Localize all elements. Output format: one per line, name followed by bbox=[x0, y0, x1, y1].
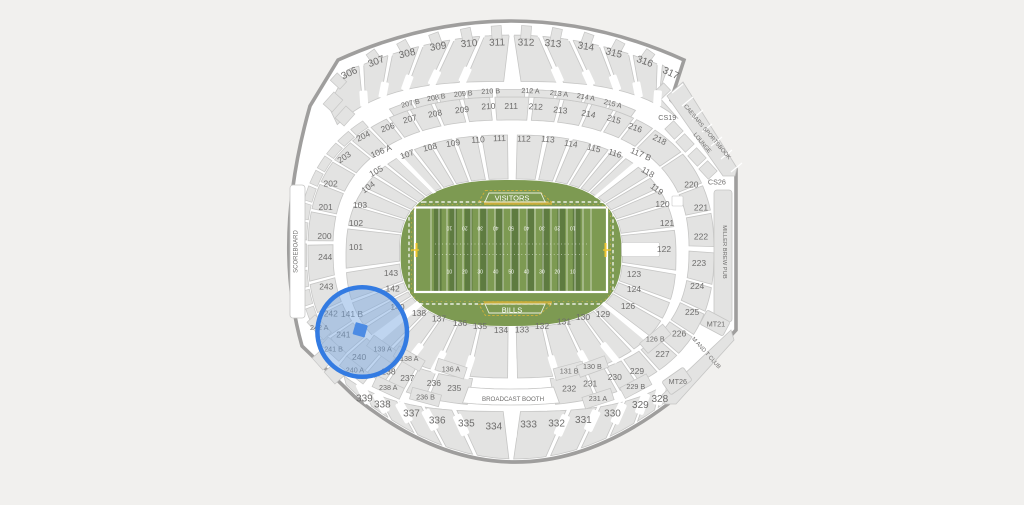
svg-text:212: 212 bbox=[528, 101, 543, 112]
svg-text:138: 138 bbox=[412, 308, 426, 318]
svg-text:121: 121 bbox=[660, 218, 674, 228]
svg-text:BROADCAST BOOTH: BROADCAST BOOTH bbox=[482, 396, 544, 403]
svg-text:MT26: MT26 bbox=[669, 377, 687, 386]
svg-text:312: 312 bbox=[518, 37, 535, 48]
svg-text:244: 244 bbox=[318, 252, 332, 262]
svg-text:143: 143 bbox=[384, 268, 398, 278]
svg-text:MILLER BREW PUB: MILLER BREW PUB bbox=[721, 225, 727, 279]
svg-text:229: 229 bbox=[630, 366, 644, 376]
svg-text:226: 226 bbox=[672, 328, 686, 338]
svg-text:SCOREBOARD: SCOREBOARD bbox=[294, 230, 300, 273]
svg-text:VISITORS: VISITORS bbox=[495, 194, 530, 203]
svg-text:20: 20 bbox=[554, 225, 560, 231]
svg-text:238 A: 238 A bbox=[379, 383, 398, 392]
svg-text:338: 338 bbox=[374, 400, 391, 411]
svg-text:236 B: 236 B bbox=[416, 393, 435, 402]
svg-text:227: 227 bbox=[655, 349, 669, 359]
svg-text:220: 220 bbox=[684, 180, 698, 190]
svg-text:229 B: 229 B bbox=[626, 382, 645, 391]
svg-text:131: 131 bbox=[557, 317, 571, 327]
svg-text:331: 331 bbox=[575, 415, 592, 426]
svg-text:126 B: 126 B bbox=[646, 334, 665, 343]
svg-text:MT21: MT21 bbox=[707, 319, 725, 328]
svg-text:230: 230 bbox=[608, 372, 622, 382]
svg-text:335: 335 bbox=[458, 418, 475, 429]
svg-text:50: 50 bbox=[508, 270, 514, 276]
svg-text:332: 332 bbox=[548, 418, 565, 429]
svg-text:10: 10 bbox=[446, 225, 452, 231]
svg-text:235: 235 bbox=[447, 383, 461, 393]
svg-text:213 A: 213 A bbox=[549, 88, 568, 99]
svg-text:337: 337 bbox=[403, 408, 420, 419]
svg-text:221: 221 bbox=[694, 203, 708, 213]
svg-text:225: 225 bbox=[685, 307, 699, 317]
svg-text:110: 110 bbox=[471, 134, 485, 145]
svg-text:243: 243 bbox=[319, 282, 333, 292]
svg-text:132: 132 bbox=[535, 321, 549, 331]
svg-text:113: 113 bbox=[541, 134, 556, 145]
svg-text:CS26: CS26 bbox=[708, 178, 726, 187]
svg-text:BILLS: BILLS bbox=[502, 306, 522, 315]
svg-text:120: 120 bbox=[655, 199, 669, 209]
svg-text:111: 111 bbox=[493, 133, 506, 143]
svg-text:232: 232 bbox=[562, 383, 576, 393]
svg-text:40: 40 bbox=[524, 270, 530, 276]
svg-text:20: 20 bbox=[462, 270, 468, 276]
svg-text:30: 30 bbox=[539, 270, 545, 276]
svg-text:123: 123 bbox=[627, 269, 641, 279]
svg-text:30: 30 bbox=[477, 225, 483, 231]
svg-text:209: 209 bbox=[454, 104, 469, 115]
svg-text:40: 40 bbox=[524, 225, 530, 231]
svg-text:328: 328 bbox=[651, 394, 668, 405]
svg-text:40: 40 bbox=[493, 270, 499, 276]
svg-text:112: 112 bbox=[517, 133, 531, 143]
svg-text:30: 30 bbox=[539, 225, 545, 231]
svg-text:311: 311 bbox=[489, 37, 506, 48]
svg-text:137: 137 bbox=[432, 314, 446, 324]
svg-text:129: 129 bbox=[596, 309, 610, 319]
svg-text:135: 135 bbox=[473, 321, 487, 331]
svg-text:329: 329 bbox=[632, 400, 649, 411]
svg-text:130 B: 130 B bbox=[583, 362, 602, 371]
svg-text:202: 202 bbox=[324, 178, 338, 188]
svg-text:126: 126 bbox=[621, 301, 635, 311]
svg-text:200: 200 bbox=[317, 231, 331, 241]
svg-text:333: 333 bbox=[520, 420, 537, 431]
svg-text:210 B: 210 B bbox=[481, 86, 500, 96]
svg-text:101: 101 bbox=[349, 242, 363, 252]
svg-text:20: 20 bbox=[555, 270, 561, 276]
svg-text:130: 130 bbox=[576, 312, 590, 322]
svg-text:133: 133 bbox=[515, 325, 529, 335]
svg-text:224: 224 bbox=[690, 281, 704, 291]
svg-text:236: 236 bbox=[427, 378, 441, 388]
svg-text:339: 339 bbox=[356, 393, 373, 404]
svg-text:40: 40 bbox=[493, 225, 499, 231]
svg-text:124: 124 bbox=[627, 284, 641, 294]
svg-text:336: 336 bbox=[429, 416, 446, 427]
svg-text:201: 201 bbox=[319, 202, 333, 212]
svg-text:210: 210 bbox=[481, 101, 496, 112]
svg-text:334: 334 bbox=[485, 422, 502, 433]
svg-text:222: 222 bbox=[694, 232, 708, 242]
svg-text:50: 50 bbox=[508, 225, 514, 231]
svg-text:136 A: 136 A bbox=[442, 364, 461, 373]
svg-text:313: 313 bbox=[544, 38, 562, 50]
svg-text:134: 134 bbox=[494, 325, 508, 335]
svg-text:10: 10 bbox=[570, 270, 576, 276]
svg-text:213: 213 bbox=[553, 104, 568, 115]
svg-text:122: 122 bbox=[657, 244, 671, 254]
svg-text:231: 231 bbox=[583, 378, 597, 388]
svg-text:136: 136 bbox=[453, 318, 467, 328]
svg-text:223: 223 bbox=[692, 258, 706, 268]
svg-text:211: 211 bbox=[504, 101, 518, 111]
svg-text:102: 102 bbox=[349, 218, 363, 228]
svg-text:330: 330 bbox=[604, 409, 621, 420]
svg-text:10: 10 bbox=[447, 270, 453, 276]
svg-text:10: 10 bbox=[570, 225, 576, 231]
svg-text:20: 20 bbox=[462, 225, 468, 231]
svg-text:237: 237 bbox=[400, 373, 414, 383]
svg-text:103: 103 bbox=[353, 200, 367, 210]
svg-text:CS19: CS19 bbox=[658, 113, 676, 122]
svg-text:131 B: 131 B bbox=[560, 366, 579, 375]
svg-text:30: 30 bbox=[477, 270, 483, 276]
svg-text:212 A: 212 A bbox=[521, 86, 540, 96]
svg-text:142: 142 bbox=[386, 284, 400, 294]
svg-text:114: 114 bbox=[564, 138, 579, 150]
svg-text:310: 310 bbox=[460, 38, 478, 50]
svg-text:231 A: 231 A bbox=[589, 394, 608, 403]
